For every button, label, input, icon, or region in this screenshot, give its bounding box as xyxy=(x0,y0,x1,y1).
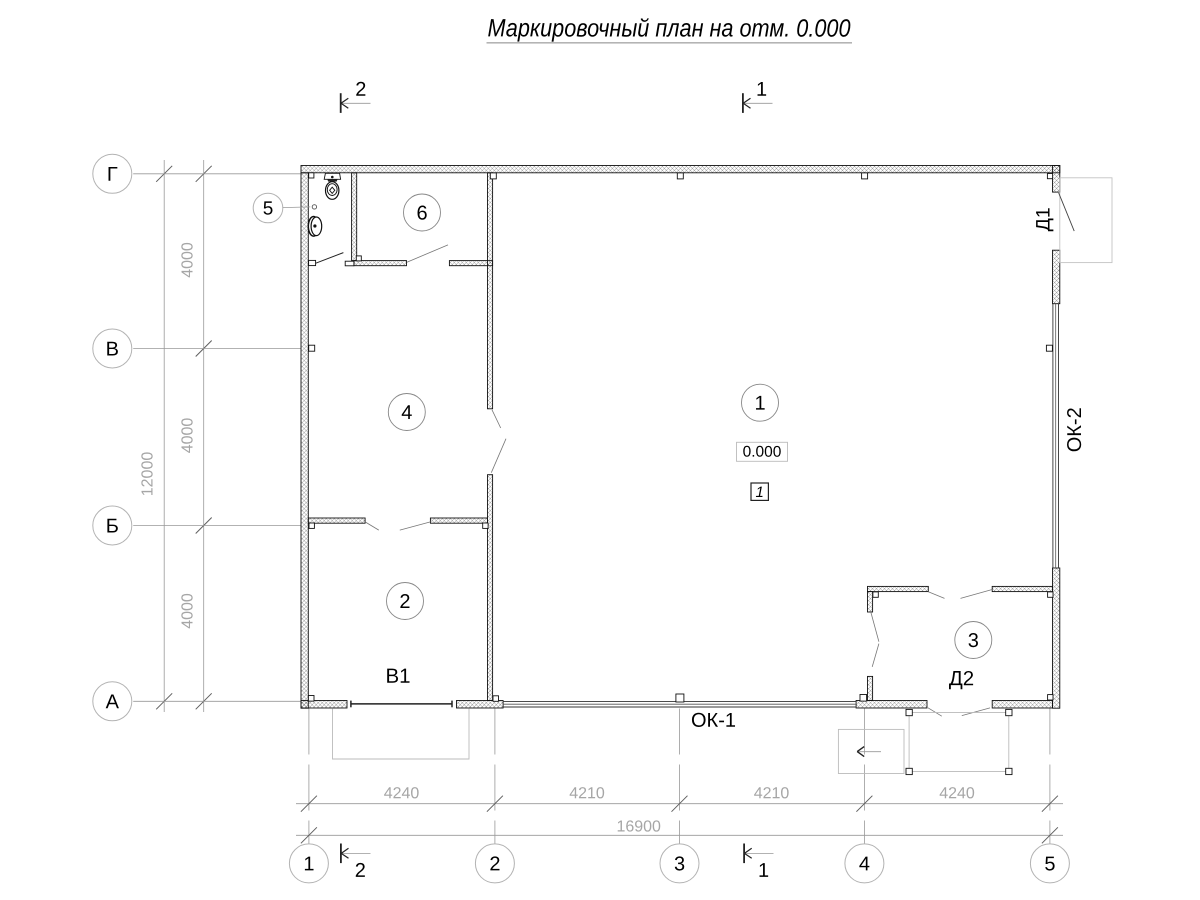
svg-text:4: 4 xyxy=(859,853,870,875)
svg-text:Д1: Д1 xyxy=(1033,207,1055,231)
svg-text:16900: 16900 xyxy=(616,818,661,835)
svg-text:6: 6 xyxy=(416,202,427,224)
svg-text:2: 2 xyxy=(489,853,500,875)
svg-text:4: 4 xyxy=(401,402,412,424)
svg-text:1: 1 xyxy=(754,393,765,415)
svg-text:3: 3 xyxy=(674,853,685,875)
svg-text:4000: 4000 xyxy=(180,593,197,629)
svg-text:2: 2 xyxy=(355,79,366,101)
svg-text:В1: В1 xyxy=(385,665,410,688)
svg-text:ОК-1: ОК-1 xyxy=(691,710,736,732)
svg-text:Б: Б xyxy=(106,515,119,537)
svg-text:0.000: 0.000 xyxy=(743,444,782,461)
svg-text:1: 1 xyxy=(756,79,767,101)
svg-text:1: 1 xyxy=(756,484,764,501)
svg-text:4000: 4000 xyxy=(180,242,197,278)
svg-text:5: 5 xyxy=(263,198,274,219)
svg-text:1: 1 xyxy=(303,853,314,875)
svg-text:Г: Г xyxy=(107,164,118,186)
svg-text:А: А xyxy=(106,691,120,713)
svg-text:В: В xyxy=(106,338,119,360)
svg-text:Д2: Д2 xyxy=(949,667,974,690)
svg-text:2: 2 xyxy=(399,591,410,613)
svg-text:4240: 4240 xyxy=(939,785,975,802)
svg-text:3: 3 xyxy=(968,630,979,652)
svg-text:4000: 4000 xyxy=(180,418,197,454)
svg-text:4240: 4240 xyxy=(384,785,420,802)
svg-text:Маркировочный план на отм. 0.0: Маркировочный план на отм. 0.000 xyxy=(487,14,850,42)
svg-text:4210: 4210 xyxy=(754,785,790,802)
svg-text:2: 2 xyxy=(355,860,366,882)
svg-text:4210: 4210 xyxy=(569,785,605,802)
svg-text:ОК-2: ОК-2 xyxy=(1064,407,1086,452)
svg-text:5: 5 xyxy=(1044,853,1055,875)
svg-text:1: 1 xyxy=(758,860,769,882)
svg-text:12000: 12000 xyxy=(140,452,157,497)
